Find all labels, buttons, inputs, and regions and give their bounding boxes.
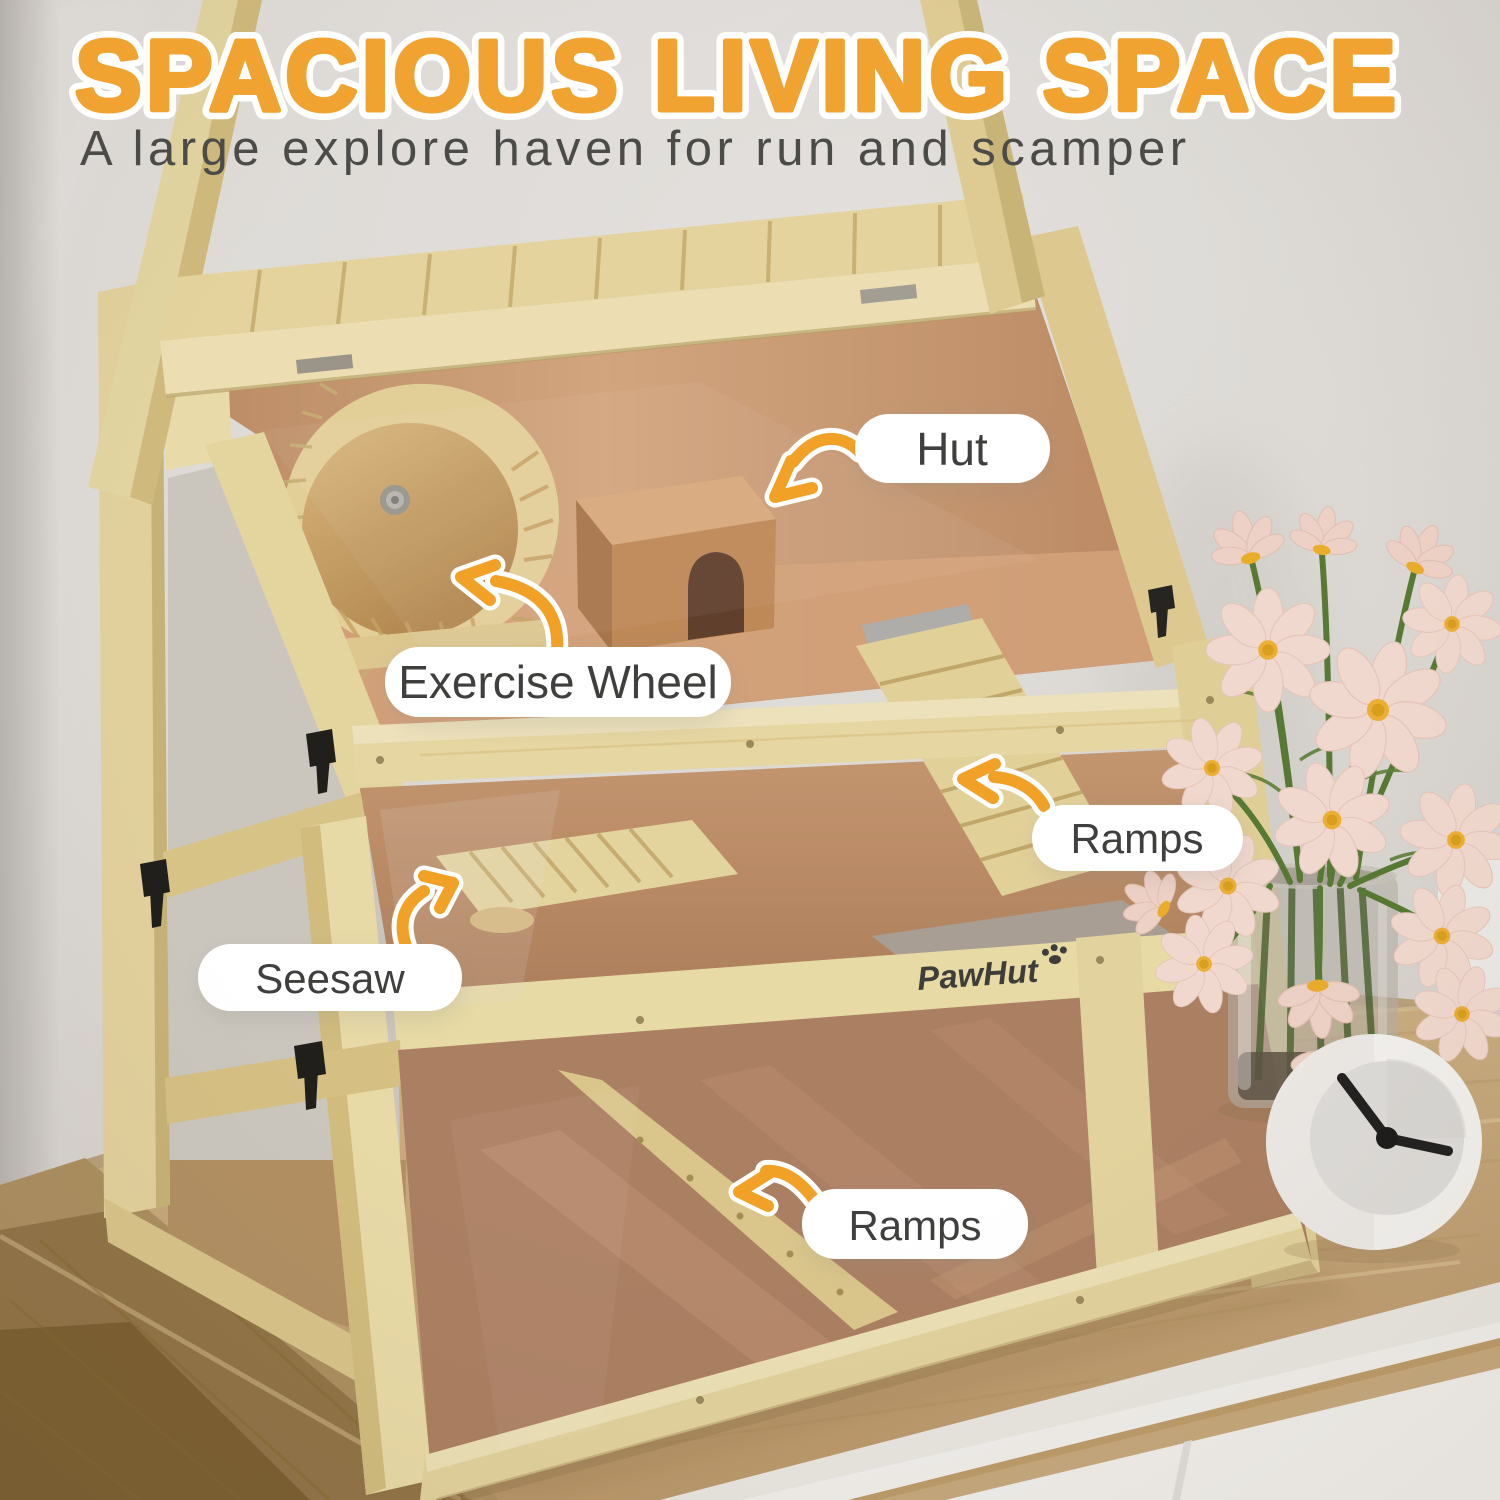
svg-text:A large explore haven for run: A large explore haven for run and scampe… — [80, 122, 1191, 176]
svg-text:SPACIOUS LIVING SPACE: SPACIOUS LIVING SPACE — [75, 20, 1400, 132]
